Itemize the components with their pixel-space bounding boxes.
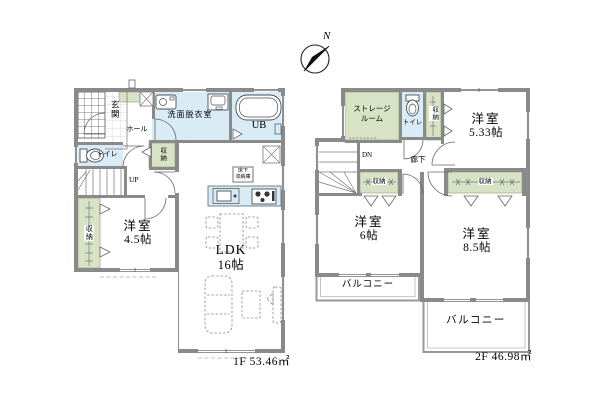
tv-board bbox=[267, 287, 281, 323]
floor2-area-label: 2F 46.98㎡ bbox=[444, 351, 532, 365]
toilet2-label: トイレ bbox=[401, 119, 424, 127]
kitchen-counter bbox=[208, 186, 281, 206]
stairs-1f bbox=[78, 169, 121, 195]
toilet1-label: トイレ bbox=[95, 150, 119, 158]
floorplan-page: N 玄関 ホール 洗面脱衣室 UB トイレ 収納 UP 洋室 4.5帖 収納 L… bbox=[0, 0, 600, 415]
corridor-label: 廊下 bbox=[407, 155, 429, 164]
hall-closet-label: 収納 bbox=[158, 147, 166, 162]
unit-bath-label: UB bbox=[247, 120, 271, 133]
front-door-leaf bbox=[129, 80, 135, 88]
stairs-down-label: DN bbox=[362, 151, 372, 159]
closet533-label: 収納 bbox=[429, 106, 439, 121]
washer-icon bbox=[156, 95, 176, 109]
balcony-left-label: バルコニー bbox=[332, 280, 404, 291]
bedroom45-label: 洋室 4.5帖 bbox=[102, 219, 174, 248]
hall-label: ホール bbox=[123, 125, 151, 133]
bedroom533-label: 洋室 5.33帖 bbox=[450, 112, 522, 141]
compass-icon bbox=[301, 45, 329, 73]
sofa bbox=[205, 276, 232, 333]
floor1-area-label: 1F 53.46㎡ bbox=[202, 356, 290, 370]
balcony-bottom-label: バルコニー bbox=[440, 315, 512, 328]
underfloor-storage-label: 床下 収納庫 bbox=[233, 169, 253, 182]
bedroom85-label: 洋室 8.5帖 bbox=[441, 227, 513, 256]
vanity-icon bbox=[208, 94, 228, 110]
closet85-label: 収納 bbox=[471, 178, 499, 186]
coffee-table bbox=[242, 291, 260, 318]
bedroom45-closet-label: 収納 bbox=[84, 225, 94, 241]
hall-closet-door-marker bbox=[142, 147, 151, 157]
compass-north-label: N bbox=[323, 30, 330, 43]
stairs-up-label: UP bbox=[129, 175, 139, 184]
storage-room-label: ストレージ ルーム bbox=[344, 104, 400, 124]
closet6-label: 収納 bbox=[365, 178, 393, 186]
stove-icon bbox=[252, 189, 276, 204]
bedroom6-label: 洋室 6帖 bbox=[333, 215, 405, 244]
cross-box-porch bbox=[140, 92, 153, 106]
cross-box-ldk bbox=[263, 146, 280, 163]
ldk-label: LDK 16帖 bbox=[195, 242, 267, 273]
entrance-label: 玄関 bbox=[110, 100, 120, 119]
stairs-2f bbox=[319, 152, 357, 193]
toilet2-icon bbox=[406, 95, 419, 116]
entrance-porch-tiles bbox=[78, 92, 105, 138]
washroom-label: 洗面脱衣室 bbox=[157, 110, 223, 120]
